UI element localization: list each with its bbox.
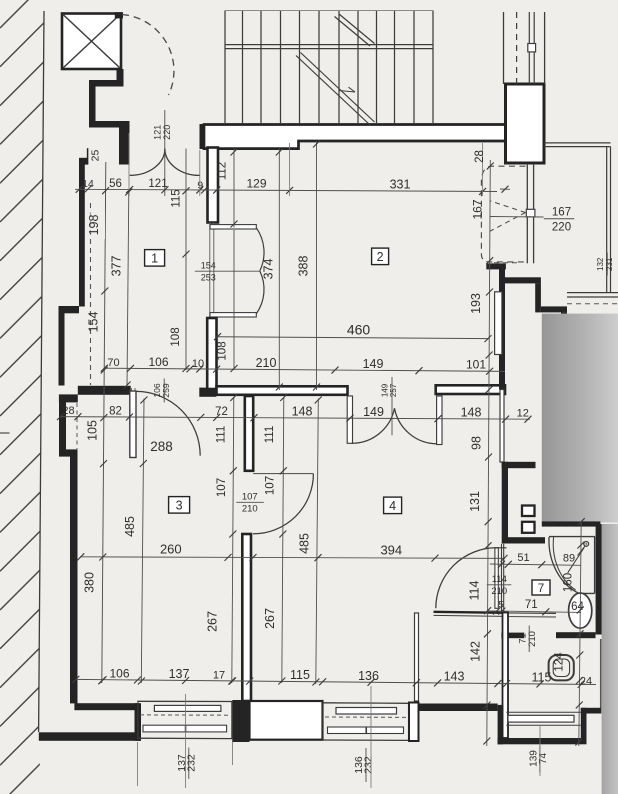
svg-text:112: 112 [217, 162, 229, 180]
svg-text:14: 14 [82, 178, 94, 190]
svg-text:124: 124 [554, 652, 566, 672]
svg-text:394: 394 [380, 543, 402, 558]
svg-text:114: 114 [467, 580, 481, 600]
svg-text:388: 388 [297, 256, 311, 277]
svg-text:10: 10 [192, 358, 204, 370]
svg-text:210: 210 [256, 356, 277, 370]
svg-text:7: 7 [538, 581, 545, 595]
svg-text:143: 143 [444, 670, 465, 684]
svg-text:148: 148 [292, 404, 313, 418]
svg-text:232: 232 [186, 754, 198, 772]
svg-text:374: 374 [261, 259, 275, 280]
svg-text:28: 28 [62, 405, 74, 417]
svg-text:111: 111 [215, 426, 227, 443]
svg-text:115: 115 [171, 189, 183, 207]
svg-text:220: 220 [162, 125, 172, 140]
svg-text:267: 267 [206, 611, 220, 632]
svg-text:154: 154 [87, 312, 101, 333]
svg-text:231: 231 [605, 257, 614, 271]
svg-text:82: 82 [109, 405, 122, 417]
svg-text:121: 121 [148, 178, 167, 190]
svg-text:220: 220 [552, 221, 571, 233]
svg-text:160: 160 [563, 573, 575, 592]
svg-text:2: 2 [377, 250, 384, 264]
svg-text:167: 167 [470, 199, 484, 219]
svg-text:106: 106 [109, 666, 129, 680]
svg-text:3: 3 [176, 499, 183, 513]
svg-text:105: 105 [85, 420, 99, 441]
svg-text:267: 267 [263, 608, 277, 629]
svg-text:106: 106 [148, 355, 168, 369]
svg-text:253: 253 [201, 272, 216, 282]
svg-text:51: 51 [517, 552, 529, 564]
svg-text:71: 71 [525, 599, 538, 611]
svg-text:132: 132 [596, 257, 605, 271]
svg-text:28: 28 [474, 150, 486, 163]
svg-text:288: 288 [150, 439, 173, 454]
svg-text:259: 259 [161, 383, 171, 397]
svg-text:210: 210 [527, 631, 538, 647]
svg-text:460: 460 [347, 322, 371, 338]
svg-text:142: 142 [468, 641, 482, 662]
svg-text:129: 129 [246, 177, 266, 191]
svg-text:210: 210 [242, 503, 258, 514]
svg-text:64: 64 [571, 601, 584, 613]
svg-text:232: 232 [363, 756, 375, 774]
svg-text:136: 136 [358, 669, 379, 683]
svg-text:114: 114 [492, 574, 507, 585]
svg-text:115: 115 [290, 668, 310, 682]
svg-text:89: 89 [563, 553, 575, 565]
svg-text:107: 107 [242, 491, 258, 502]
svg-text:149: 149 [363, 357, 384, 371]
svg-text:107: 107 [264, 476, 276, 495]
svg-text:98: 98 [469, 436, 483, 450]
svg-text:167: 167 [552, 206, 571, 218]
svg-text:12: 12 [517, 408, 529, 420]
svg-text:137: 137 [169, 667, 190, 681]
svg-text:331: 331 [390, 177, 411, 191]
svg-text:260: 260 [160, 542, 182, 557]
svg-text:210: 210 [491, 586, 507, 597]
svg-text:108: 108 [217, 341, 229, 360]
svg-text:4: 4 [389, 499, 396, 513]
svg-text:24: 24 [580, 675, 592, 687]
svg-text:198: 198 [87, 215, 101, 236]
svg-text:17: 17 [213, 669, 225, 681]
svg-text:149: 149 [363, 405, 384, 419]
svg-text:154: 154 [201, 260, 216, 270]
svg-text:111: 111 [264, 426, 276, 443]
svg-text:5: 5 [498, 599, 503, 610]
svg-text:70: 70 [107, 357, 119, 369]
svg-text:108: 108 [170, 327, 182, 346]
svg-text:72: 72 [215, 406, 228, 418]
svg-text:56: 56 [109, 178, 122, 190]
svg-text:193: 193 [469, 293, 483, 314]
svg-text:74: 74 [538, 753, 549, 765]
svg-text:131: 131 [468, 491, 482, 512]
svg-text:115: 115 [532, 670, 552, 684]
svg-text:485: 485 [297, 533, 311, 554]
svg-text:25: 25 [90, 150, 102, 162]
svg-text:377: 377 [109, 256, 123, 277]
svg-text:485: 485 [123, 516, 137, 537]
svg-text:1: 1 [151, 252, 158, 266]
svg-text:107: 107 [216, 478, 228, 497]
svg-text:101: 101 [466, 358, 486, 372]
svg-text:9: 9 [197, 179, 203, 191]
svg-text:148: 148 [461, 405, 482, 419]
svg-text:380: 380 [83, 572, 97, 593]
svg-text:257: 257 [389, 383, 398, 397]
